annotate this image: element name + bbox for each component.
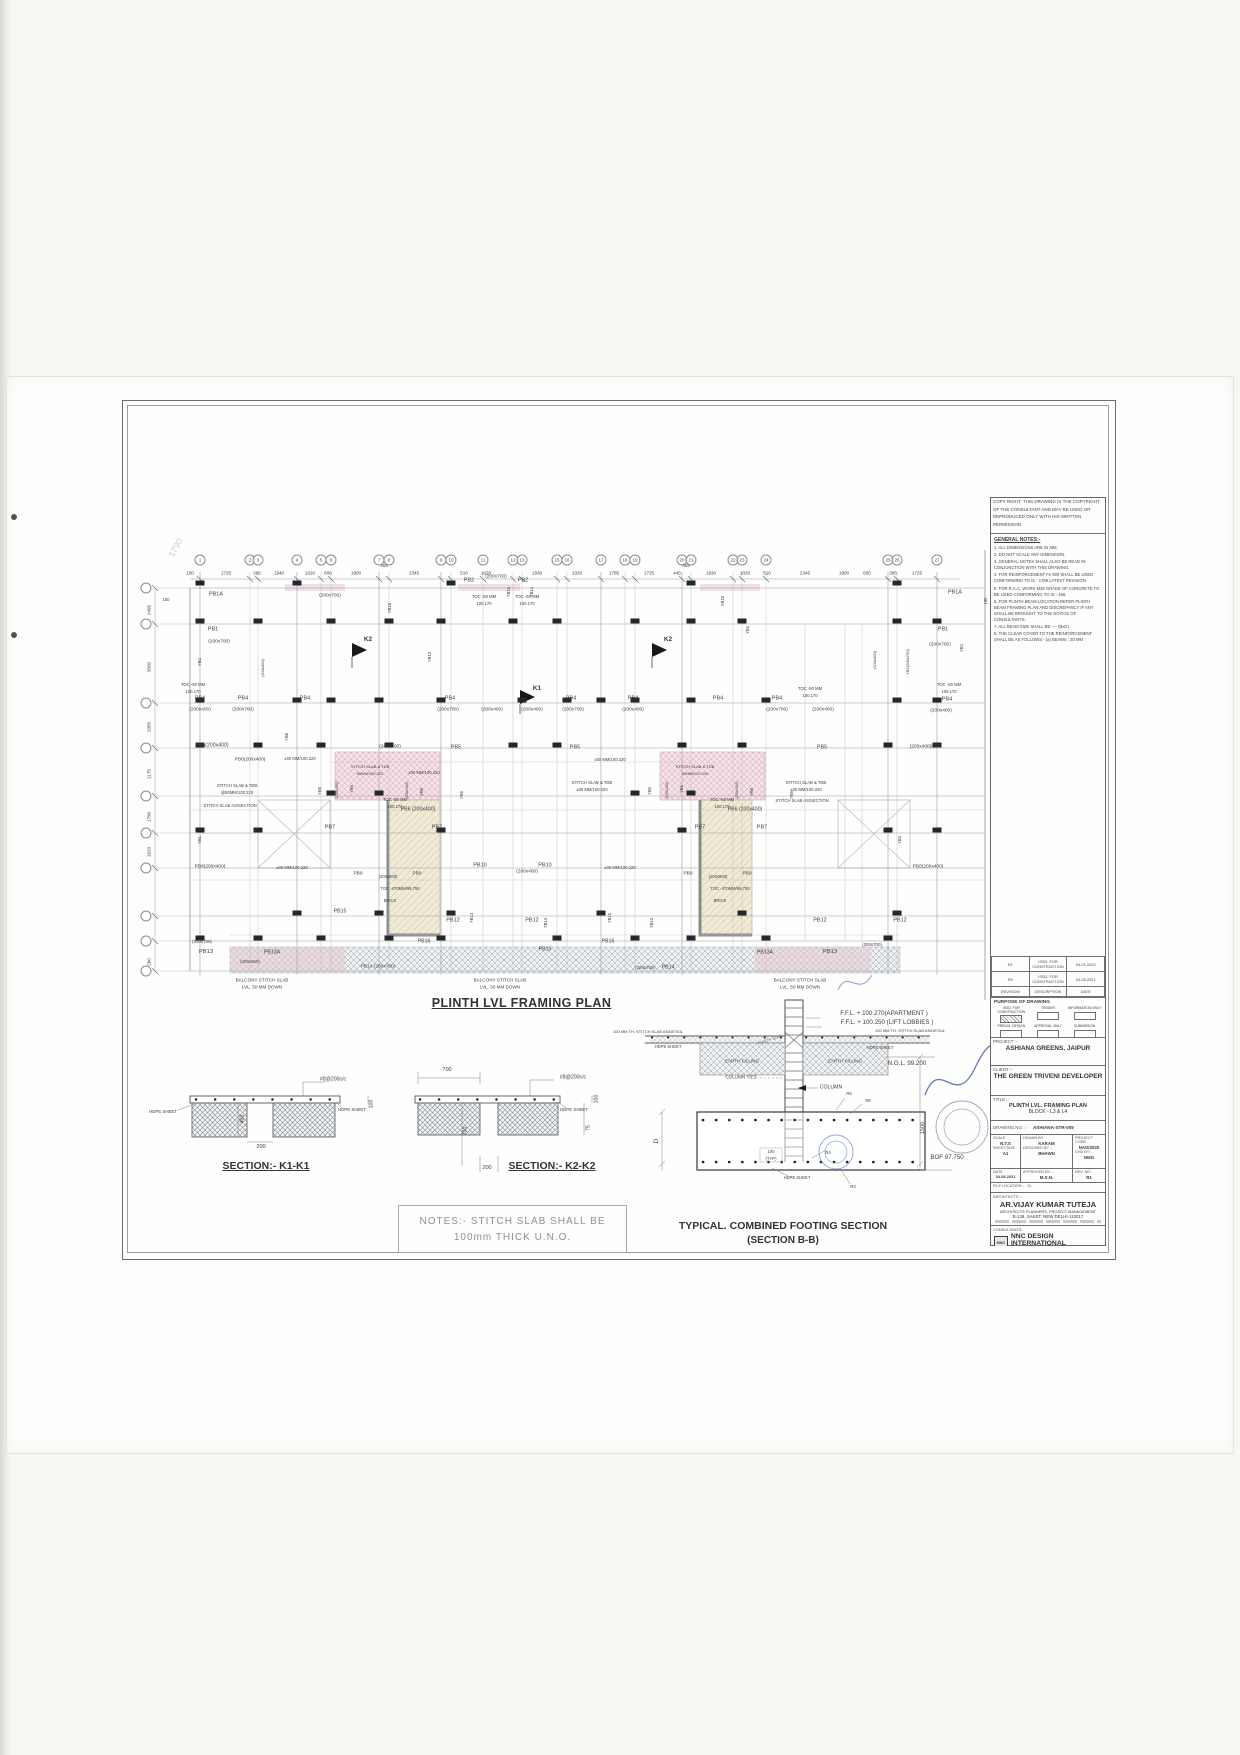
plan-label: 2345 — [800, 572, 810, 577]
architect-address: B-138, SAKET, NEW DELHI-110017 — [991, 1214, 1105, 1219]
plan-label: PB4 — [628, 696, 638, 702]
general-note: 6. FOR PLINTH BEAM LOCATION REFER PLINTH… — [991, 598, 1105, 623]
plan-label: 100.170 — [476, 602, 491, 606]
purpose-option: TENDER — [1031, 1007, 1066, 1023]
sheet-size-value: A1 — [993, 1151, 1018, 1156]
plan-label: (200x400) — [666, 781, 670, 798]
rev-no-label: REV. NO. — [1075, 1170, 1103, 1174]
general-note: 3. GENERAL NOTES SHALL ALSO BE READ IN C… — [991, 558, 1105, 571]
rev-no-value: R1 — [1075, 1175, 1103, 1180]
plan-label: (200x400) — [379, 746, 401, 751]
scale-label: SCALE — [993, 1136, 1018, 1140]
plan-label: TOC -50 MM — [383, 798, 407, 802]
copyright-line: OF THE CONSULTANT AND MAY BE USED OR — [991, 506, 1105, 514]
grid-bubble — [141, 619, 152, 630]
plan-label: 1930 — [532, 572, 542, 577]
plan-label: @80MM/100.220 — [221, 791, 253, 795]
plan-label: YB15 — [608, 913, 612, 923]
plan-label: PB4 — [713, 696, 723, 702]
plan-label: 100 — [594, 1095, 599, 1104]
plan-label: 700 — [463, 1127, 468, 1136]
plan-label: HDPE SHEET — [338, 1108, 366, 1112]
copyright-box: COPY RIGHT: THIS DRAWING IS THE COPYRIGH… — [991, 498, 1105, 534]
plan-label: K1 — [533, 686, 541, 693]
checkbox — [1037, 1030, 1059, 1038]
scale-grid: SCALE N.T.S SHEET SIZE A1 DRAWN BY :- KA… — [991, 1135, 1105, 1169]
plan-label: STITCH SLAB & TDB — [676, 765, 715, 769]
plan-label: BALCONY STITCH SLAB — [236, 979, 289, 984]
plan-label: 100.170 — [519, 602, 534, 606]
plan-label: (200x700) — [929, 644, 951, 649]
plan-label: YB4 — [898, 836, 902, 844]
plan-label: (200x400) — [873, 651, 877, 669]
architects-box: ARCHITECTS :- AR.VIJAY KUMAR TUTEJA ARCH… — [991, 1193, 1105, 1226]
plan-label: PB4 — [772, 696, 782, 702]
plan-label: (200x660) — [379, 875, 398, 879]
rev-hdr: REVISION — [992, 987, 1030, 997]
nnc-logo: NNC — [994, 1236, 1008, 1246]
column-mark — [447, 911, 456, 916]
plan-label: (200x400) — [189, 709, 211, 714]
plan-label: K2 — [664, 637, 672, 644]
plan-label: PB8(200x400) — [913, 866, 944, 871]
plan-label: R4 — [825, 1151, 830, 1155]
plan-label: R5 — [846, 1092, 851, 1096]
drawn-by-label: DRAWN BY :- — [1023, 1136, 1070, 1140]
plan-label: 510 — [460, 572, 468, 577]
plan-label: 1620 — [148, 847, 153, 857]
designed-by-label: DESIGNED BY :- — [1023, 1146, 1070, 1150]
notes-box: NOTES:- STITCH SLAB SHALL BE 100mm THICK… — [398, 1205, 627, 1253]
grid-bubble: 23 — [737, 555, 748, 566]
plan-label: PB4 — [300, 696, 310, 702]
purpose-label: INFORMATION ONLY — [1068, 1007, 1101, 1011]
plan-label: 445 — [673, 572, 681, 577]
column-mark — [196, 828, 205, 833]
plan-label: 100 MM TH. STITCH SLAB AS/DETAIL — [613, 1030, 683, 1034]
plan-label: 260 — [148, 958, 153, 966]
project-code-label: PROJECT CODE — [1075, 1136, 1103, 1144]
plan-label: (200x700) — [562, 709, 584, 714]
plan-label: 1725 — [221, 572, 231, 577]
plan-label: ±00 MM/100.220 — [790, 788, 821, 792]
checkbox-checked — [1000, 1015, 1022, 1023]
plan-label: (200x400) — [261, 659, 265, 677]
grid-bubble: 6 — [326, 555, 337, 566]
plan-label: 100.170 — [941, 690, 956, 694]
plan-label: YB2(200x700) — [906, 649, 910, 675]
architect-name: AR.VIJAY KUMAR TUTEJA — [991, 1200, 1105, 1209]
grid-bubble: 26 — [892, 555, 903, 566]
plan-label: (200x700) — [485, 576, 507, 581]
plan-label: PB5 — [570, 745, 580, 751]
plan-label: EARTH FILLING — [725, 1060, 759, 1065]
grid-bubble: 13 — [517, 555, 528, 566]
column-mark — [254, 828, 263, 833]
plan-label: 100.170 — [387, 805, 402, 809]
plan-label: (200x400) — [516, 871, 538, 876]
client-box: CLIENT :- THE GREEN TRIVENI DEVELOPER — [991, 1066, 1105, 1096]
rev-desc: ISSD. FOR CONSTRUCTION — [1029, 957, 1067, 972]
checkbox — [1037, 1012, 1059, 1020]
architects-label: ARCHITECTS :- — [991, 1193, 1105, 1200]
plan-label: YB13 — [544, 918, 548, 928]
grid-bubble — [141, 936, 152, 947]
plan-label: YB6 — [680, 785, 684, 793]
grid-bubble: 4 — [292, 555, 303, 566]
project-name: ASHIANA GREENS, JAIPUR — [991, 1045, 1105, 1052]
rev-id: R1 — [992, 957, 1030, 972]
plan-label: 50MM/100.220 — [357, 772, 384, 776]
plan-label: N.G.L. 99.200 — [888, 1061, 927, 1067]
plan-label: LVL. 50 MM DOWN — [780, 986, 820, 991]
consultant-name: NNC DESIGN INTERNATIONAL — [1011, 1233, 1102, 1246]
plan-label: (200x400) — [736, 781, 740, 798]
grid-bubble — [141, 863, 152, 874]
plan-label: PB9 — [412, 873, 421, 878]
notes-line1: NOTES:- STITCH SLAB SHALL BE — [419, 1216, 605, 1227]
plan-label: PB2 — [518, 578, 528, 584]
plan-label: 1175 — [148, 769, 153, 779]
plan-label: PB13A — [757, 950, 773, 955]
purpose-option: PRELIM. DESIGN — [994, 1025, 1029, 1038]
plan-label: PB5 — [451, 745, 461, 751]
footing-section-title: TYPICAL. COMBINED FOOTING SECTION — [659, 1220, 907, 1232]
plan-label: BALCONY STITCH SLAB — [474, 979, 527, 984]
column-mark — [687, 791, 696, 796]
column-mark — [447, 581, 456, 586]
grid-bubble: 10 — [446, 555, 457, 566]
column-mark — [597, 698, 606, 703]
plan-label: PB5 — [817, 745, 827, 751]
plan-label: K2 — [364, 637, 372, 644]
general-note: 2. DO NOT SCALE ANY DIMENSION. — [991, 551, 1105, 558]
people-cell: DRAWN BY :- KARAM DESIGNED BY :- BHAWN — [1021, 1135, 1073, 1168]
grid-bubble: 11 — [478, 555, 489, 566]
plan-label: PB6 (200x400) — [728, 807, 763, 812]
plan-label: STITCH SLAB & TDB — [572, 781, 612, 785]
plan-label: TOC -470MM/99.750 — [710, 887, 749, 891]
column-mark — [553, 936, 562, 941]
column-mark — [437, 619, 446, 624]
rev-hdr: DESCRIPTION — [1029, 987, 1067, 997]
column-mark — [893, 619, 902, 624]
column-mark — [518, 698, 527, 703]
column-mark — [509, 619, 518, 624]
checkbox — [1074, 1030, 1096, 1038]
plan-label: STITCH SLAB & TDB — [351, 765, 390, 769]
rev-hdr: DATE — [1067, 987, 1105, 997]
column-mark — [375, 791, 384, 796]
plan-label: 190 — [984, 598, 988, 605]
plan-label: YB1 — [960, 644, 964, 652]
column-mark — [631, 791, 640, 796]
plan-label: ±00 MM/100.220 — [408, 771, 439, 775]
grid-bubble — [141, 698, 152, 709]
grid-bubble — [141, 743, 152, 754]
plan-label: YB1 — [198, 836, 202, 844]
plan-label: 395 — [889, 572, 897, 577]
column-mark — [317, 936, 326, 941]
grid-bubble — [141, 966, 152, 977]
plan-label: HDPE SHEET — [784, 1176, 811, 1180]
plan-label: YB6 — [350, 785, 354, 793]
plan-grid — [152, 550, 985, 1000]
plan-label: YB15 — [507, 587, 511, 597]
column-mark — [893, 581, 902, 586]
section-k2-title: SECTION:- K2-K2 — [491, 1160, 613, 1172]
plan-label: COLUMN — [820, 1085, 842, 1090]
plan-label: PB6 (200x400) — [401, 807, 436, 812]
plan-label: (200x700) — [232, 709, 254, 714]
plan-label: PB10 — [538, 863, 551, 869]
column-mark — [884, 936, 893, 941]
plan-label: ±00 MM/100.220 — [594, 758, 625, 762]
plan-label: (200x400) — [481, 709, 503, 714]
column-mark — [254, 619, 263, 624]
plan-label: STITCH SLAB AS/SECTION — [203, 804, 256, 808]
client-name: THE GREEN TRIVENI DEVELOPER — [991, 1073, 1105, 1080]
plan-label: TOC -50 MM — [798, 687, 822, 691]
general-notes-list: 1. ALL DIMENSIONS ARE IN MM.2. DO NOT SC… — [991, 544, 1105, 643]
plan-label: PB13 — [199, 950, 213, 956]
column-mark — [385, 936, 394, 941]
plan-label: #8@200c/c — [560, 1075, 586, 1080]
column-mark — [254, 743, 263, 748]
plan-label: 510 — [763, 572, 771, 577]
plan-label: PB9 — [683, 873, 692, 878]
plan-label: 100.170 — [185, 690, 200, 694]
column-mark — [678, 743, 687, 748]
plan-label: F.F.L. + 100.270(APARTMENT ) — [840, 1011, 928, 1017]
plan-label: YB12 — [428, 652, 432, 662]
plan-label: 100 — [186, 572, 194, 577]
plan-label: YB5 — [318, 787, 322, 795]
plan-label: PB16 — [602, 939, 615, 944]
column-mark — [509, 743, 518, 748]
plan-label: COLUMN TIES — [725, 1076, 756, 1081]
plan-label: 100 — [768, 1150, 775, 1154]
column-mark — [884, 743, 893, 748]
plan-title: PLINTH LVL FRAMING PLAN — [404, 996, 639, 1010]
purpose-label: PRELIM. DESIGN — [998, 1025, 1026, 1029]
column-mark — [375, 911, 384, 916]
project-label: PROJECT :- — [991, 1038, 1105, 1045]
plan-label: (200x400) — [622, 709, 644, 714]
plan-label: 2345 — [409, 572, 419, 577]
plan-label: 200 — [256, 1145, 265, 1151]
plan-label: F.F.L. + 100.250 (LIFT LOBBIES ) — [841, 1020, 934, 1026]
purpose-label: ISSD. FOR CONSTRUCTION — [994, 1007, 1029, 1014]
plan-label: PB9 — [742, 873, 751, 878]
date-label: DATE — [993, 1170, 1018, 1174]
column-mark — [553, 743, 562, 748]
plan-label: TOC -470MM/99.750 — [380, 887, 419, 891]
plan-label: 100 — [163, 598, 170, 602]
highlight-zones — [230, 584, 910, 973]
plan-label: PB2 — [464, 578, 474, 584]
plan-label: PB14 (200x700) — [361, 966, 396, 971]
plan-label: 1800 — [839, 572, 849, 577]
plan-label: HDPE SHEET — [149, 1110, 177, 1114]
plan-label: HDPE SHEET — [867, 1046, 894, 1050]
plan-label: ±00 MM/100.220 — [604, 866, 635, 870]
plan-label: YB13 — [470, 913, 474, 923]
column-mark — [293, 581, 302, 586]
purpose-option: INFORMATION ONLY — [1067, 1007, 1102, 1023]
plan-label: PB4 — [238, 696, 248, 702]
rev-date: 24-08-2021 — [1067, 972, 1105, 987]
date-grid: DATE 04-08-2021 APPROVED BY :- M.S.N. RE… — [991, 1169, 1105, 1193]
plan-label: #8@200c/c — [320, 1077, 346, 1082]
plan-label: YB8 — [285, 733, 289, 741]
column-mark — [327, 619, 336, 624]
plan-label: 600 — [863, 572, 871, 577]
project-box: PROJECT :- ASHIANA GREENS, JAIPUR — [991, 1038, 1105, 1066]
plan-label: TOC -50 MM — [181, 683, 205, 687]
column-mark — [933, 698, 942, 703]
plan-label: PB6(200x400) — [235, 759, 266, 764]
grid-bubble: 1 — [195, 555, 206, 566]
plan-label: EARTH FILLING — [828, 1060, 862, 1065]
file-location-value: D:- — [1028, 1184, 1033, 1188]
column-mark — [375, 698, 384, 703]
plan-label: LVL. 50 MM DOWN — [480, 986, 520, 991]
plan-label: PB7 — [432, 825, 442, 831]
plan-label: YB3 — [746, 626, 750, 634]
plan-label: (200x400) — [406, 781, 410, 798]
plan-label: (200x400) — [930, 710, 952, 715]
checkbox — [1074, 1012, 1096, 1020]
plan-label: PB12 — [813, 918, 826, 924]
general-note: 8. THE CLEAR COVER TO THE REINFORCEMENT … — [991, 630, 1105, 643]
plan-label: PB13A — [264, 950, 280, 955]
plan-label: 3500 — [148, 662, 153, 672]
column-mark — [196, 581, 205, 586]
column-mark — [738, 743, 747, 748]
column-mark — [738, 619, 747, 624]
rev-date: 04-01-2022 — [1067, 957, 1105, 972]
column-mark — [738, 911, 747, 916]
column-mark — [385, 619, 394, 624]
plan-label: PB10 — [473, 863, 486, 869]
column-mark — [687, 581, 696, 586]
plan-label: 100 — [369, 1100, 374, 1109]
plan-label: PB14 — [662, 965, 675, 970]
plan-label: (200x400) — [812, 709, 834, 714]
rev-id: R0 — [992, 972, 1030, 987]
column-mark — [933, 619, 942, 624]
column-mark — [687, 936, 696, 941]
plan-label: HDPE SHEET — [560, 1108, 588, 1112]
plan-label: (200x700) — [319, 595, 341, 600]
plan-label: 1785 — [609, 572, 619, 577]
plan-label: TOC -50 MM — [937, 683, 961, 687]
revision-header-row: REVISION DESCRIPTION DATE — [992, 987, 1105, 997]
column-mark — [893, 698, 902, 703]
revision-table: R1 ISSD. FOR CONSTRUCTION 04-01-2022 R0 … — [991, 956, 1105, 998]
plan-label: BRICK — [384, 899, 397, 903]
copyright-line: COPY RIGHT: THIS DRAWING IS THE COPYRIGH… — [991, 498, 1105, 506]
plan-label: 455 — [682, 564, 689, 568]
purpose-label: APPROVAL ONLY — [1034, 1025, 1062, 1029]
plan-label: ±00 MM/100.220 — [284, 757, 315, 761]
plan-label: 700 — [442, 1068, 451, 1074]
plan-label: YB8 — [750, 788, 754, 796]
plan-label: PB4 — [942, 697, 952, 703]
plan-label: 1930 — [706, 572, 716, 577]
plan-label: PB16 — [418, 939, 431, 944]
plan-label: YB5 — [790, 791, 794, 799]
plan-label: BRICK — [714, 899, 727, 903]
column-mark — [762, 698, 771, 703]
purpose-option: SUBMISSION — [1067, 1025, 1102, 1038]
purpose-option: ISSD. FOR CONSTRUCTION — [994, 1007, 1029, 1023]
grid-bubble: 19 — [630, 555, 641, 566]
plan-label: LVL. 50 MM DOWN — [242, 986, 282, 991]
plan-label: BALCONY STITCH SLAB — [774, 979, 827, 984]
plan-label: ±00 MM/100.220 — [576, 788, 607, 792]
column-mark — [762, 936, 771, 941]
plan-label: (200x660) — [709, 875, 728, 879]
title-label: TITLE :- — [991, 1096, 1105, 1103]
plan-label: TOC -50 MM — [472, 595, 496, 599]
grid-bubble: 16 — [562, 555, 573, 566]
plan-label: 100.170 — [802, 694, 817, 698]
plan-label: YB10 — [721, 596, 725, 607]
column-mark — [631, 936, 640, 941]
plan-label: R3 — [850, 1185, 855, 1189]
column-mark — [317, 743, 326, 748]
plan-label: PB15 — [539, 947, 552, 952]
plan-label: PB7 — [325, 825, 335, 831]
plan-label: PB12 — [446, 918, 459, 924]
plan-label: PB12 — [893, 918, 906, 924]
column-mark — [597, 911, 606, 916]
column-mark — [437, 936, 446, 941]
column-mark — [687, 698, 696, 703]
grid-bubble — [141, 791, 152, 802]
plan-label: 600 — [324, 572, 332, 577]
plan-label: PB9 — [353, 873, 362, 878]
plan-label: (200x400) — [336, 781, 340, 798]
plan-label: YB10 — [388, 603, 392, 614]
rev-desc: ISSD. FOR CONSTRUCTION — [1029, 972, 1067, 987]
plan-label: 50MM/100.220 — [682, 772, 709, 776]
plan-label: 1020 — [305, 572, 315, 577]
plan-label: 400 — [240, 1115, 245, 1124]
general-note: 7. ALL BEAM SIZE SHALL BE ---- (BxD). — [991, 623, 1105, 630]
plan-label: (200x700) — [208, 641, 230, 646]
grid-bubble — [141, 828, 152, 839]
footing-section-subtitle: (SECTION B-B) — [659, 1235, 907, 1246]
grid-bubble: 27 — [932, 555, 943, 566]
grid-bubble — [141, 911, 152, 922]
purpose-of-drawing: PURPOSE OF DRAWING ISSD. FOR CONSTRUCTIO… — [991, 998, 1105, 1038]
column-mark — [327, 698, 336, 703]
plan-label: (200x700) — [437, 709, 459, 714]
drawing-no: ASHIANA-STR-005 — [1033, 1125, 1074, 1130]
grid-bubble: 24 — [761, 555, 772, 566]
revision-row: R1 ISSD. FOR CONSTRUCTION 04-01-2022 — [992, 957, 1105, 972]
plan-label: PB1A — [209, 592, 223, 598]
designed-by-value: BHAWN — [1023, 1151, 1070, 1156]
column-mark — [893, 911, 902, 916]
approved-cell: APPROVED BY :- M.S.N. — [1021, 1169, 1073, 1182]
plan-label: 100.170 — [714, 805, 729, 809]
plan-label: (200x700) — [635, 966, 655, 970]
purpose-label: TENDER — [1041, 1007, 1055, 1011]
